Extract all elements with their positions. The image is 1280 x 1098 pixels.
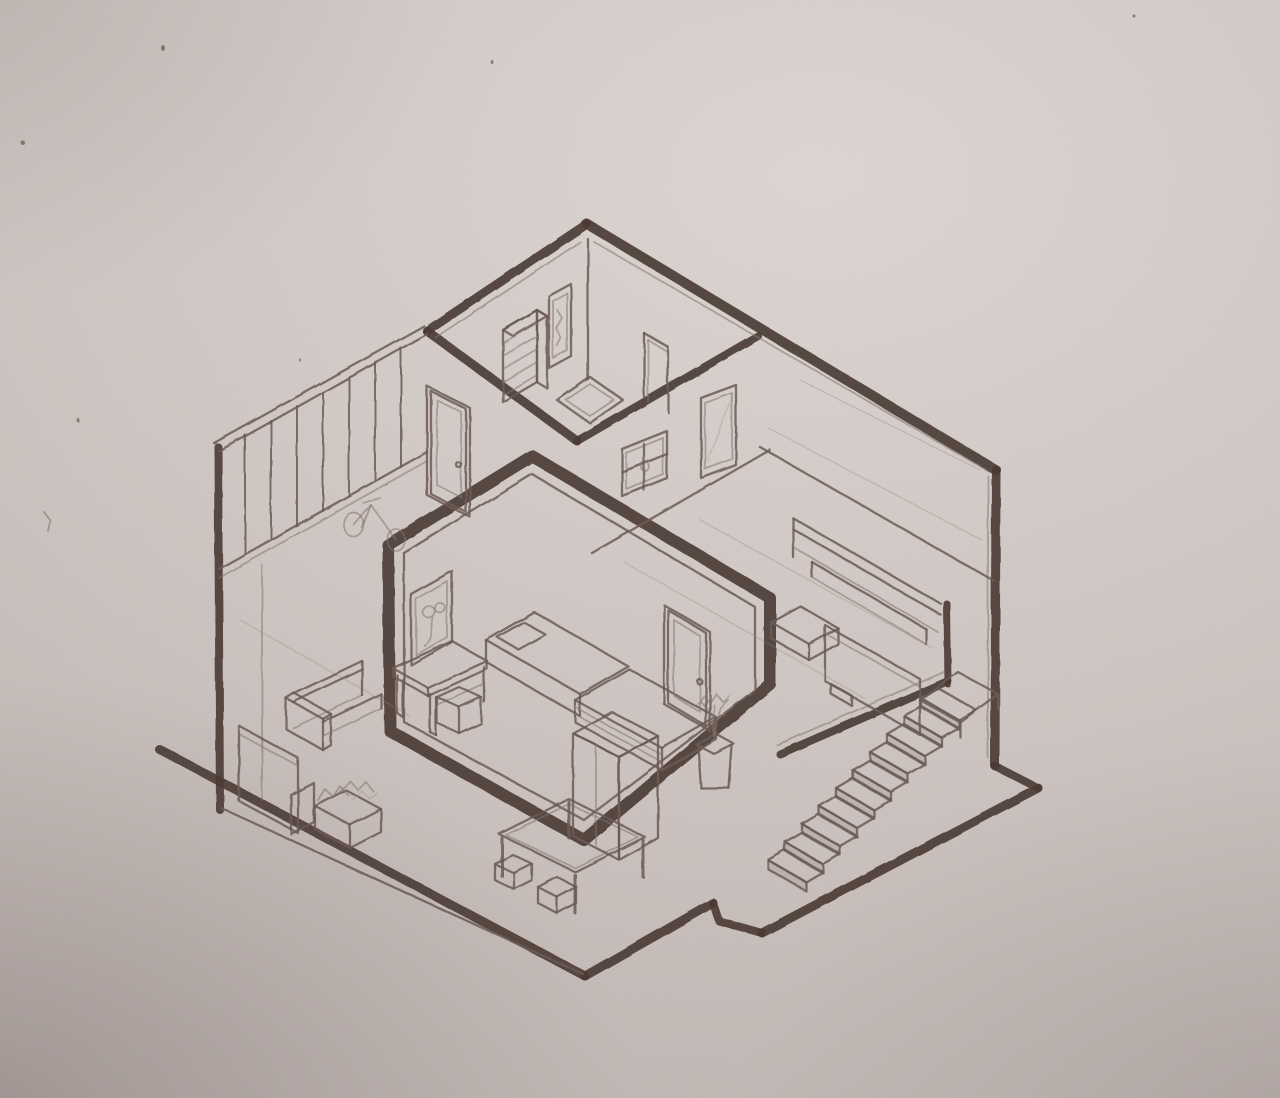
paper-background (0, 0, 1280, 1098)
sketch-svg (0, 0, 1280, 1098)
paper-grain-overlay (0, 0, 1280, 1098)
